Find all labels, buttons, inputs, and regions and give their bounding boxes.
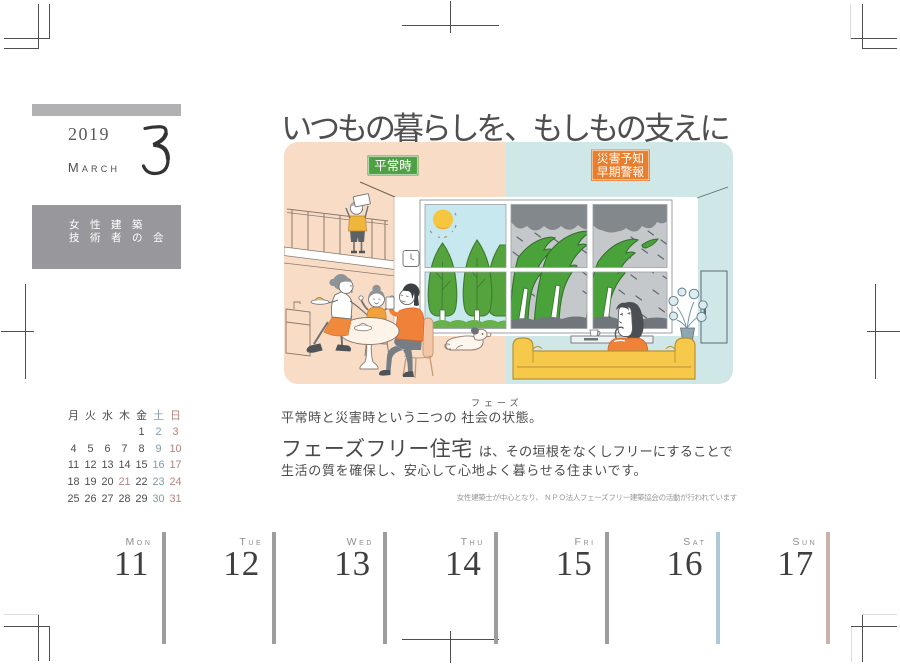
svg-text:早期警報: 早期警報: [597, 165, 644, 179]
svg-text:災害予知: 災害予知: [597, 152, 644, 166]
svg-text:平常時: 平常時: [374, 159, 412, 173]
